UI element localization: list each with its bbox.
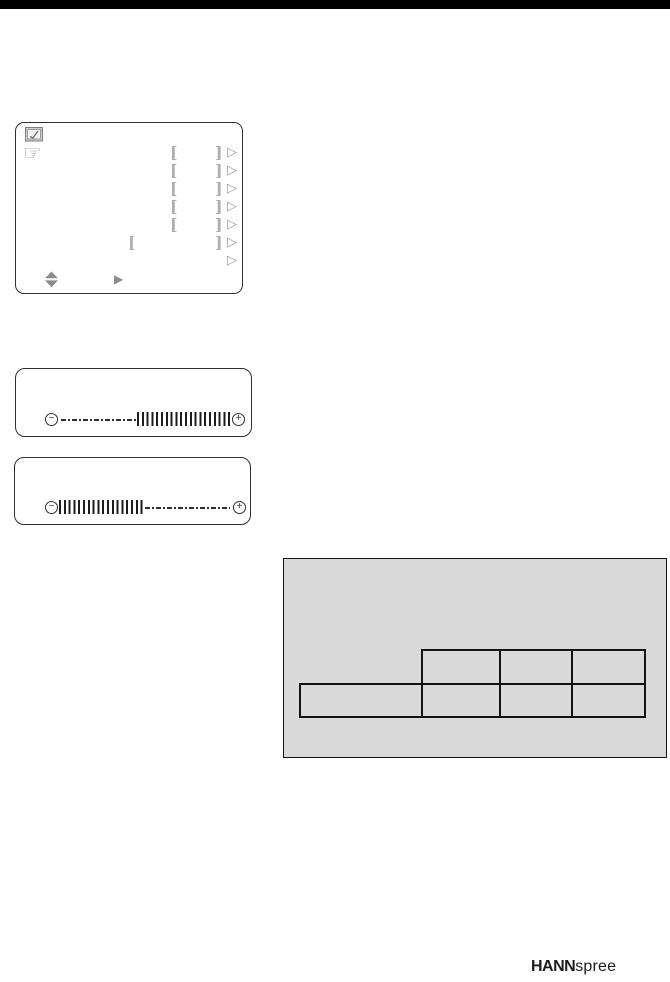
plus-icon: + (232, 413, 245, 426)
slider-fill-bars (59, 500, 144, 514)
open-bracket: [ (170, 218, 178, 232)
open-bracket: [ (170, 146, 178, 160)
open-bracket: [ (170, 200, 178, 214)
table-cell (500, 650, 572, 684)
osd-menu-row: ▷ (16, 254, 244, 270)
table-cell (422, 650, 500, 684)
slider-illustration-left-filled: − + (14, 457, 251, 525)
spec-table (299, 649, 646, 718)
osd-menu-row: [ ] ▷ (16, 164, 244, 180)
slider-track-line (145, 507, 230, 509)
close-bracket: ] (215, 146, 223, 160)
open-bracket: [ (170, 164, 178, 178)
table-cell (572, 650, 645, 684)
plus-icon: + (233, 501, 246, 514)
close-bracket: ] (215, 182, 223, 196)
right-nav-arrow-icon: ▶ (114, 272, 123, 286)
note-panel (283, 558, 667, 758)
open-bracket: [ (128, 236, 136, 250)
slider-fill-bars (137, 412, 232, 426)
table-cell (572, 684, 645, 717)
table-header-row (300, 650, 645, 684)
up-down-arrows-icon (44, 271, 59, 293)
slider-illustration-right-filled: − + (15, 368, 252, 437)
table-body-row (300, 684, 645, 717)
table-cell (422, 684, 500, 717)
minus-icon: − (45, 501, 58, 514)
right-arrow-icon: ▷ (227, 164, 237, 178)
right-arrow-icon: ▷ (227, 146, 237, 160)
logo-bold-part: HANN (531, 958, 575, 975)
right-arrow-icon: ▷ (227, 254, 237, 268)
open-bracket: [ (170, 182, 178, 196)
logo-light-part: spree (575, 958, 616, 975)
close-bracket: ] (215, 164, 223, 178)
table-cell (300, 684, 422, 717)
osd-menu-row: [ ] ▷ (16, 218, 244, 234)
table-cell-empty (300, 650, 422, 684)
osd-menu-row: [ ] ▷ (16, 236, 244, 252)
close-bracket: ] (215, 218, 223, 232)
osd-menu-row: [ ] ▷ (16, 200, 244, 216)
hannspree-logo: HANNspree (531, 958, 616, 976)
right-arrow-icon: ▷ (227, 218, 237, 232)
slider-track-line (61, 419, 136, 421)
right-arrow-icon: ▷ (227, 200, 237, 214)
osd-menu-illustration: ☞ [ ] ▷ [ ] ▷ [ ] ▷ [ ] ▷ [ ] ▷ [ ] ▷ ▷ … (15, 122, 243, 294)
table-cell (500, 684, 572, 717)
right-arrow-icon: ▷ (227, 236, 237, 250)
right-arrow-icon: ▷ (227, 182, 237, 196)
osd-menu-row: [ ] ▷ (16, 146, 244, 162)
minus-icon: − (45, 413, 58, 426)
close-bracket: ] (215, 200, 223, 214)
page-top-bar (0, 0, 670, 9)
close-bracket: ] (215, 236, 223, 250)
osd-menu-row: [ ] ▷ (16, 182, 244, 198)
